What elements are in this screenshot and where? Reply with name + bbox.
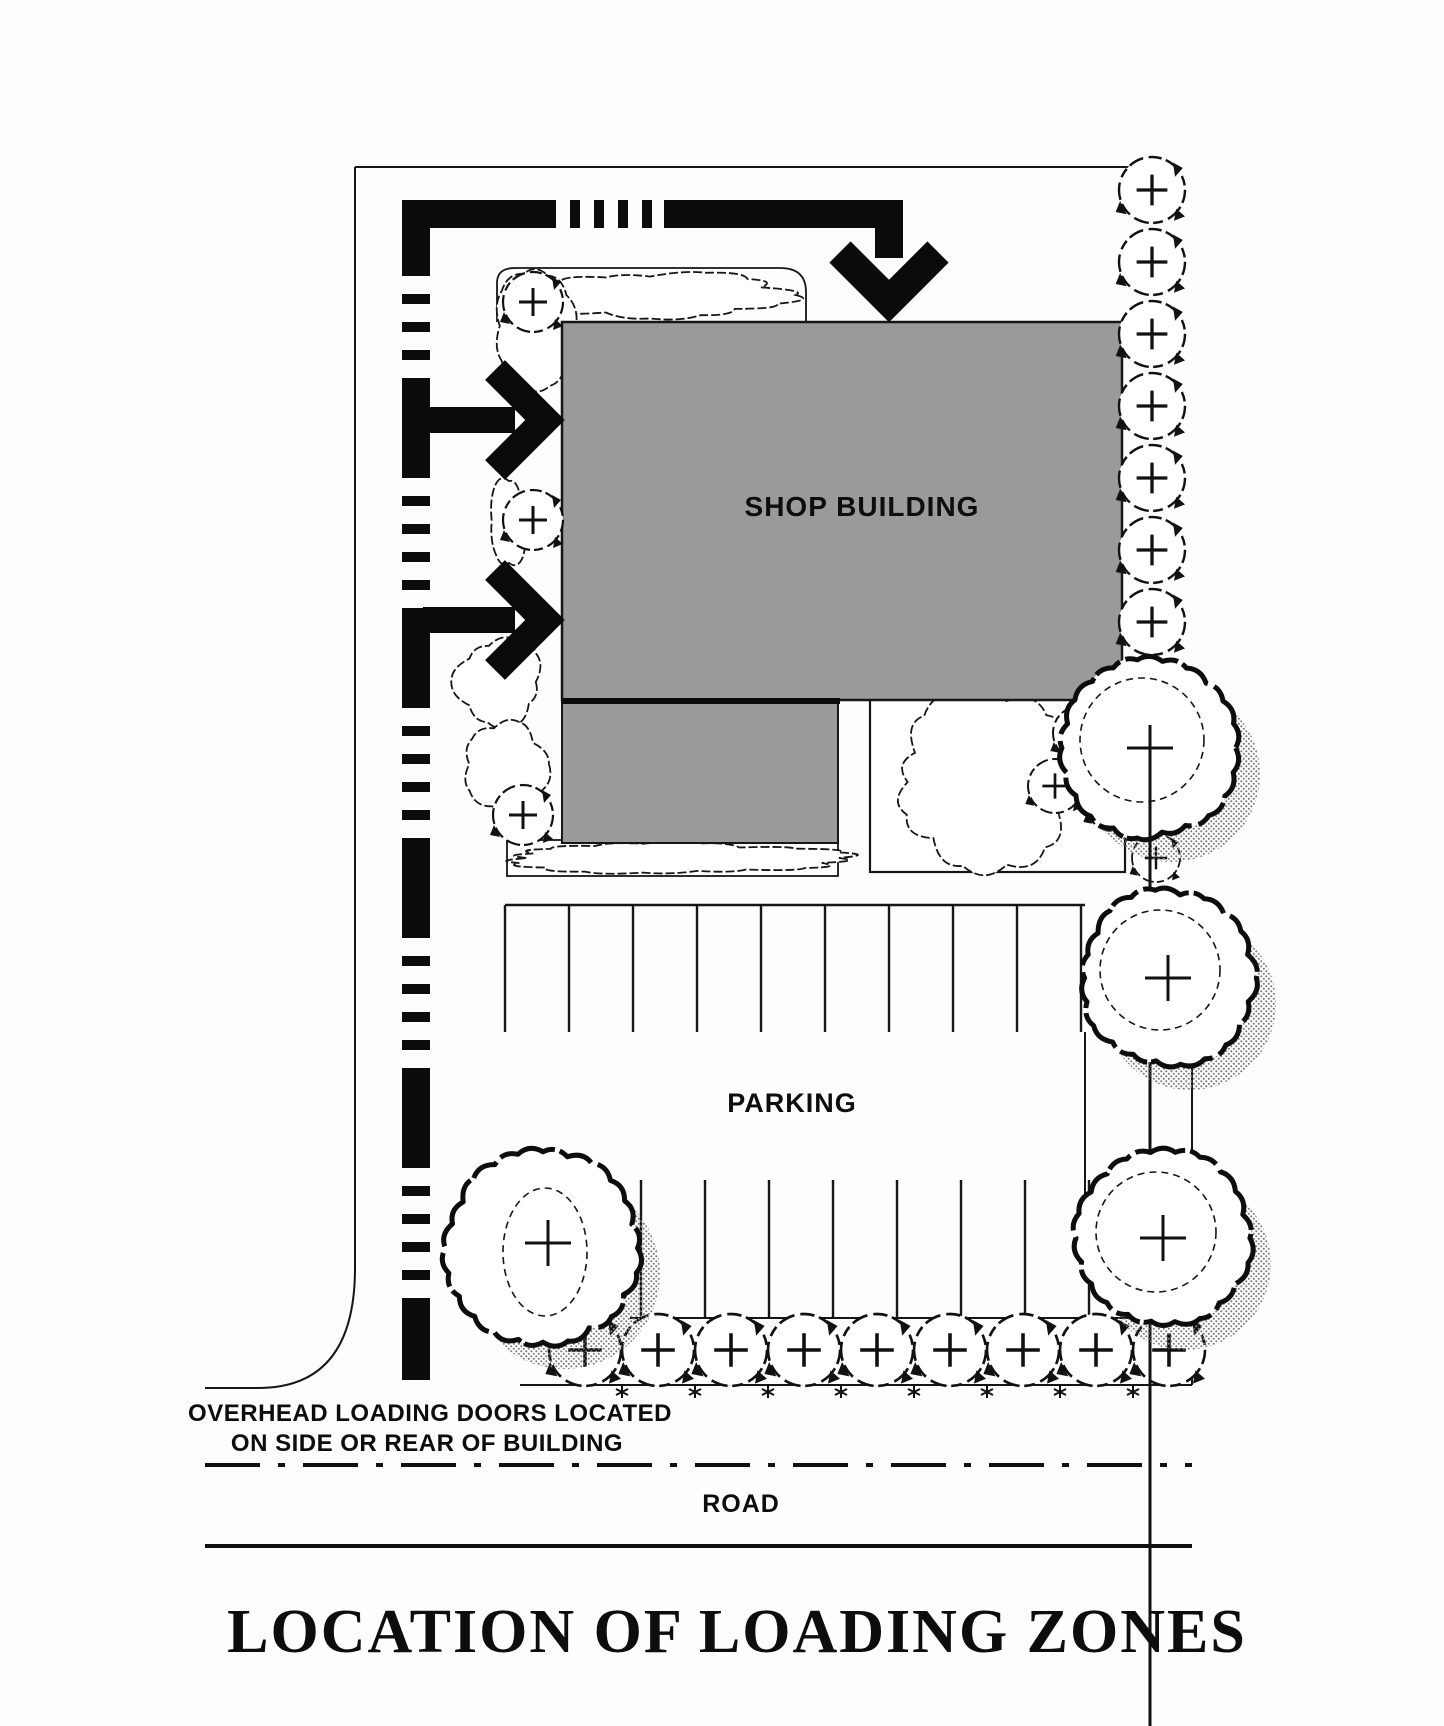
tree-icon (1116, 589, 1185, 655)
parking-stalls-top-row (505, 905, 1081, 1032)
route-corner-stub (402, 228, 430, 266)
parking-stalls-bottom-row (641, 1180, 1089, 1318)
large-tree-icon (442, 1148, 660, 1369)
tree-icon (983, 1314, 1059, 1386)
tree-icon (910, 1314, 986, 1386)
ground-mark-icon (1054, 1386, 1066, 1398)
drawing-title: LOCATION OF LOADING ZONES (227, 1598, 1247, 1666)
route-arrow1-shaft (423, 407, 515, 433)
ground-mark-icon (762, 1386, 774, 1398)
building-label: SHOP BUILDING (745, 491, 980, 522)
tree-icon (1116, 301, 1185, 367)
tree-icon (1116, 373, 1185, 439)
ground-marks (616, 1386, 1139, 1398)
tree-icon (837, 1314, 913, 1386)
ground-mark-icon (835, 1386, 847, 1398)
ground-mark-icon (616, 1386, 628, 1398)
ground-mark-icon (689, 1386, 701, 1398)
tree-icon (1116, 517, 1185, 583)
road: ROAD (205, 1465, 1192, 1546)
route-arrow2-shaft (423, 607, 515, 633)
tree-icon (691, 1314, 767, 1386)
parking-label: PARKING (727, 1088, 857, 1118)
route-arrow-down-icon (840, 252, 938, 301)
boundary-left-line-with-curb-return (205, 167, 355, 1388)
tree-icon (1056, 1314, 1132, 1386)
route-crosswalk-ticks (570, 200, 652, 228)
road-label: ROAD (702, 1490, 780, 1518)
ground-mark-icon (981, 1386, 993, 1398)
site-plan-drawing: SHOP BUILDING PARKING (0, 0, 1444, 1726)
building-annex (562, 700, 838, 843)
tree-icon (1116, 445, 1185, 511)
note-line-2: ON SIDE OR REAR OF BUILDING (231, 1430, 623, 1457)
ground-mark-icon (1127, 1386, 1139, 1398)
large-tree-icon (1082, 888, 1276, 1090)
tree-icon (764, 1314, 840, 1386)
note-line-1: OVERHEAD LOADING DOORS LOCATED (188, 1400, 672, 1427)
ground-mark-icon (908, 1386, 920, 1398)
annotation-note: OVERHEAD LOADING DOORS LOCATED ON SIDE O… (188, 1400, 672, 1457)
route-bar-top-left (402, 200, 556, 228)
site-plan-sheet: SHOP BUILDING PARKING (0, 0, 1444, 1726)
tree-icon (1116, 229, 1185, 295)
